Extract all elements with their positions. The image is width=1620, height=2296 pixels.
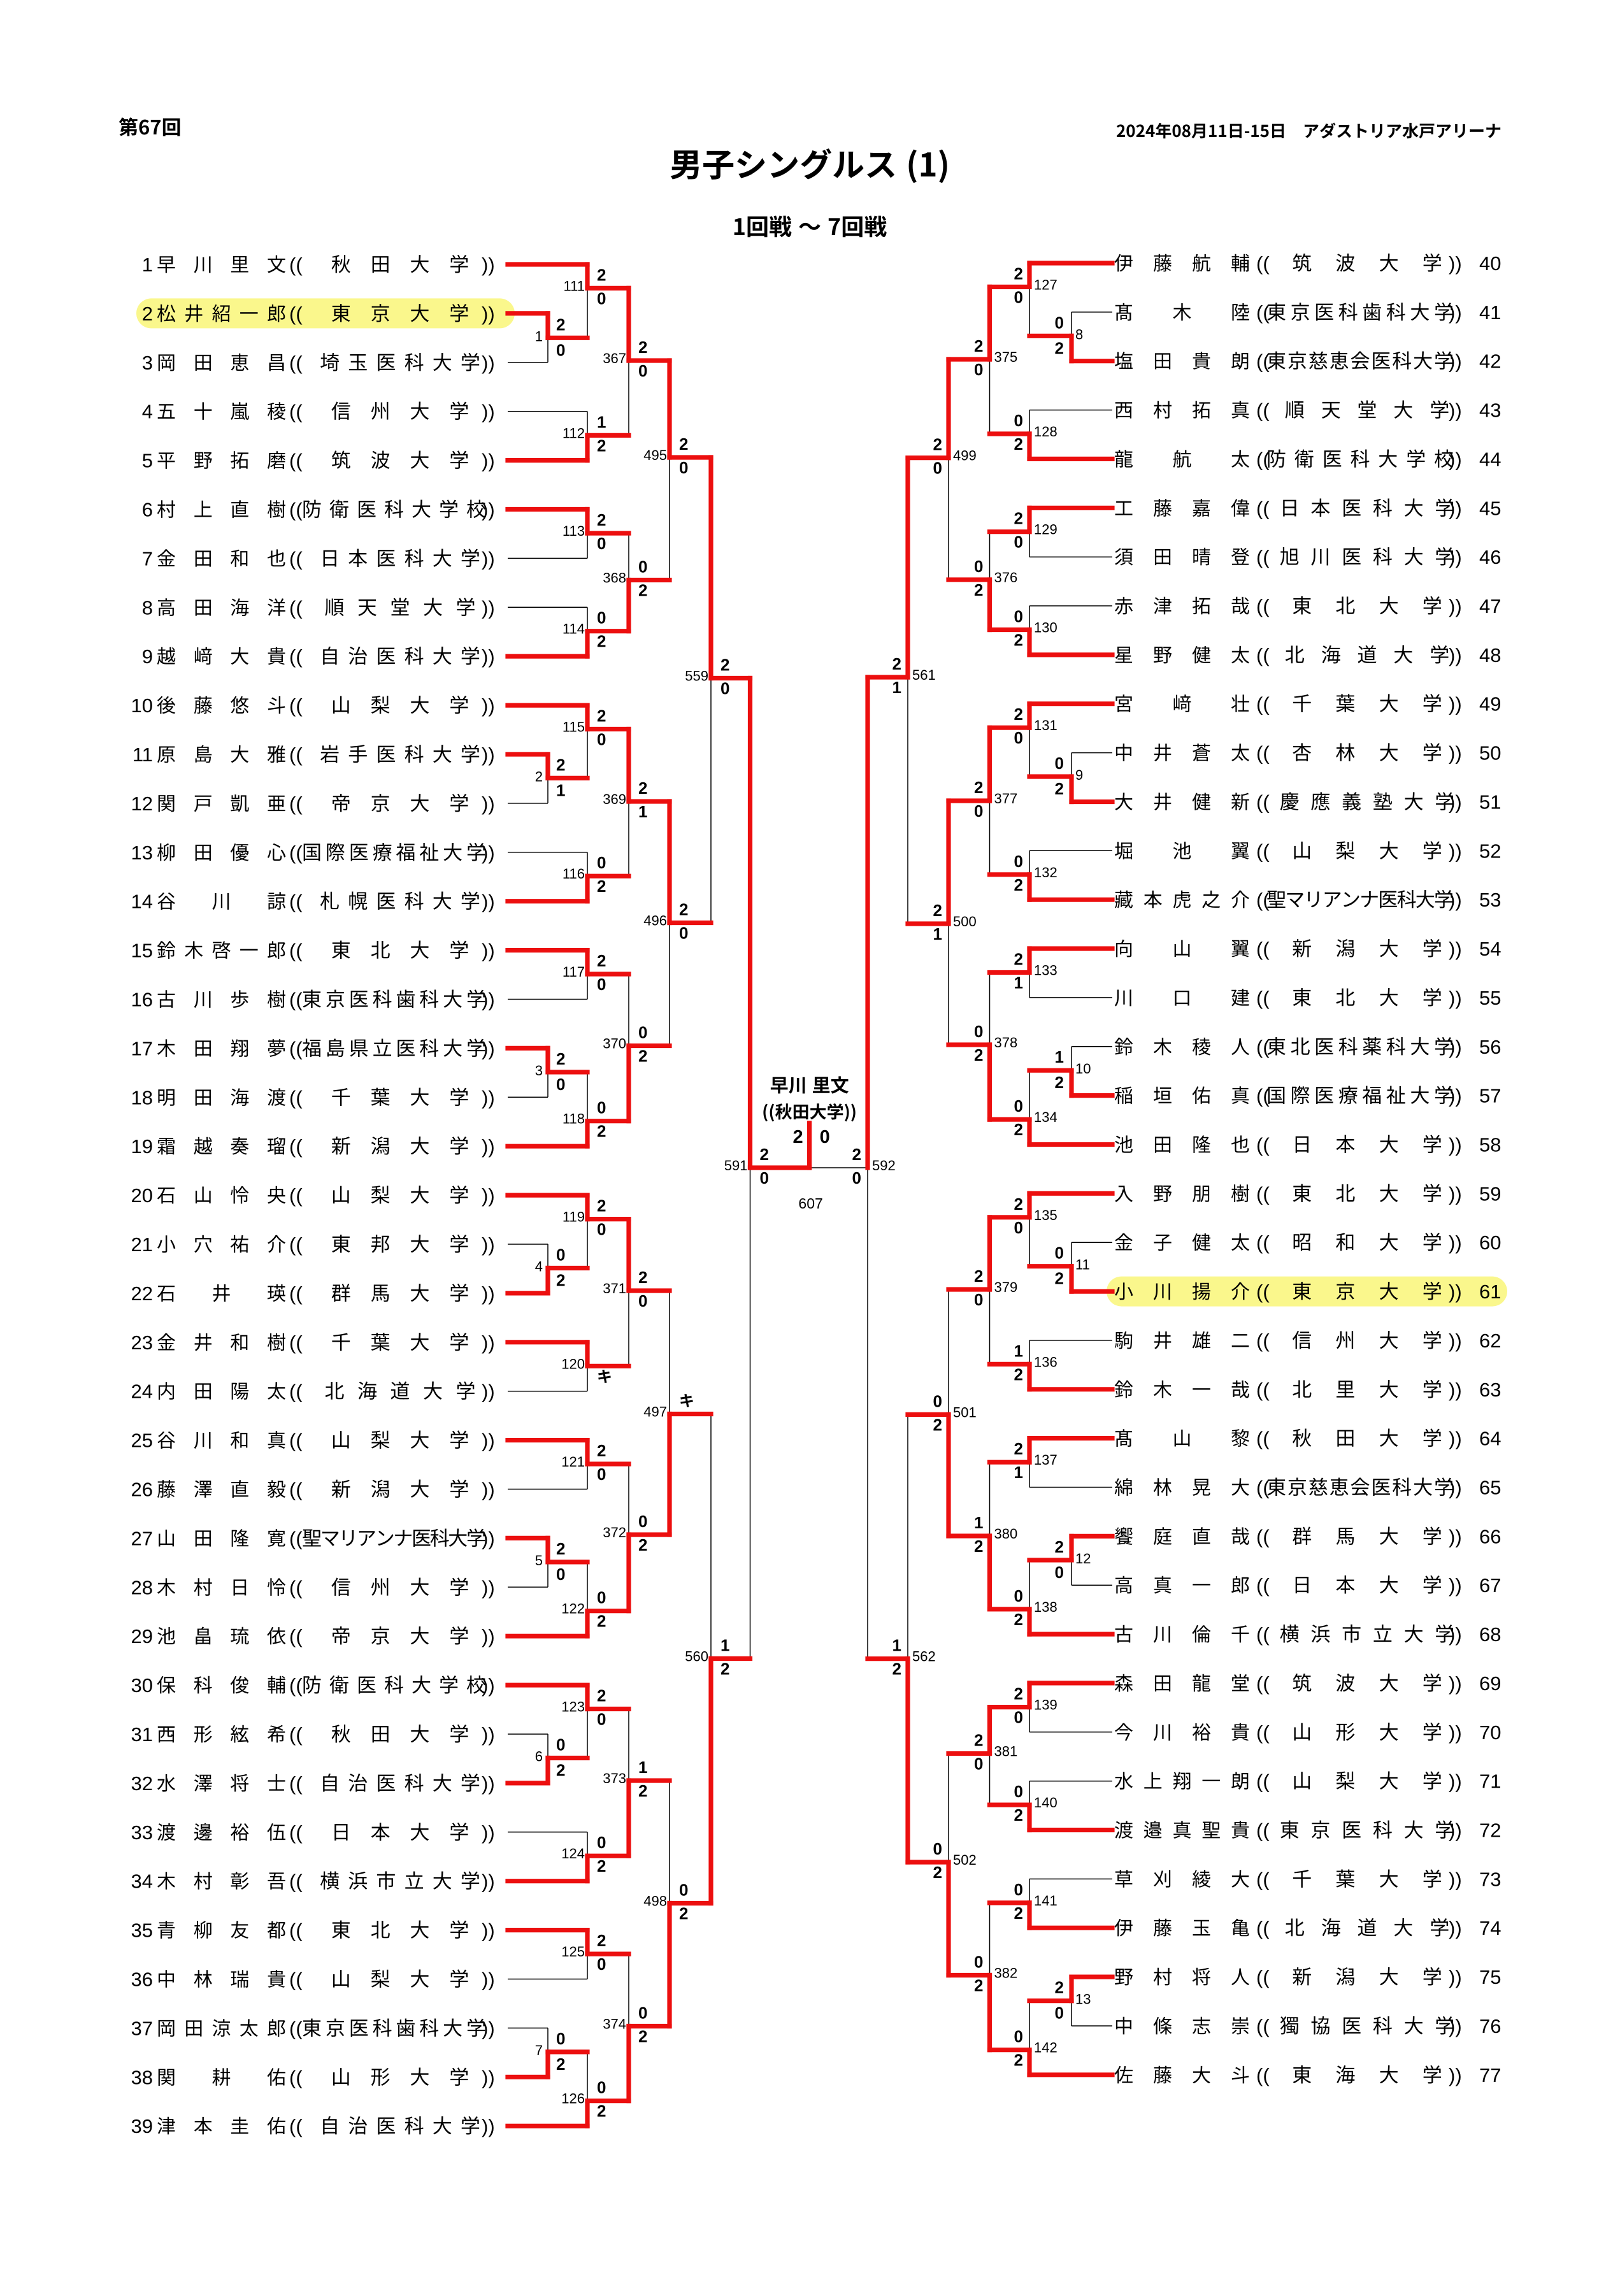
svg-text:)): )): [482, 891, 495, 913]
svg-text:2: 2: [597, 1122, 606, 1141]
svg-text:135: 135: [1034, 1207, 1057, 1223]
svg-text:1: 1: [933, 924, 942, 944]
svg-text:2: 2: [597, 1686, 606, 1705]
svg-text:2: 2: [1014, 1610, 1023, 1629]
svg-text:2: 2: [638, 581, 647, 600]
svg-text:63: 63: [1479, 1379, 1501, 1401]
svg-text:)): )): [482, 2115, 495, 2137]
svg-text:2024年08月11日-15日 アダストリア水戸アリーナ: 2024年08月11日-15日 アダストリア水戸アリーナ: [1116, 118, 1502, 142]
svg-text:東京慈恵会医科大学: 東京慈恵会医科大学: [1266, 345, 1454, 374]
svg-text:0: 0: [974, 1953, 983, 1972]
svg-text:)): )): [482, 1821, 495, 1844]
svg-text:16: 16: [131, 989, 153, 1011]
svg-text:0: 0: [638, 557, 647, 577]
svg-text:1: 1: [892, 678, 901, 697]
svg-text:((: ((: [289, 450, 303, 472]
svg-text:((: ((: [289, 645, 303, 668]
svg-text:55: 55: [1479, 987, 1501, 1009]
svg-text:((: ((: [289, 1919, 303, 1942]
svg-text:377: 377: [994, 791, 1018, 807]
svg-text:2: 2: [1055, 1537, 1064, 1556]
svg-text:29: 29: [131, 1625, 153, 1647]
svg-text:((: ((: [1256, 1721, 1270, 1744]
svg-text:((: ((: [289, 1821, 303, 1844]
svg-text:123: 123: [561, 1699, 585, 1715]
svg-text:2: 2: [556, 1539, 565, 1558]
svg-text:)): )): [1449, 889, 1462, 911]
svg-text:)): )): [482, 645, 495, 668]
svg-text:2: 2: [933, 901, 942, 920]
svg-text:)): )): [1449, 1623, 1462, 1646]
svg-text:1: 1: [638, 802, 647, 821]
svg-text:((: ((: [1256, 399, 1270, 422]
svg-text:2: 2: [556, 755, 565, 774]
svg-text:((: ((: [289, 596, 303, 619]
svg-text:0: 0: [1014, 1218, 1023, 1237]
svg-text:2: 2: [638, 2027, 647, 2046]
svg-text:66: 66: [1479, 1525, 1501, 1547]
svg-text:0: 0: [1055, 1244, 1064, 1263]
svg-text:0: 0: [638, 361, 647, 380]
svg-text:132: 132: [1034, 865, 1057, 880]
svg-text:2: 2: [1014, 1904, 1023, 1923]
svg-text:)): )): [482, 1723, 495, 1746]
svg-text:2: 2: [638, 778, 647, 798]
svg-text:19: 19: [131, 1135, 153, 1158]
svg-text:((: ((: [289, 1282, 303, 1305]
svg-text:((: ((: [289, 303, 303, 325]
svg-text:74: 74: [1479, 1917, 1501, 1939]
svg-text:2: 2: [1014, 1120, 1023, 1139]
svg-text:)): )): [482, 1772, 495, 1795]
svg-text:((: ((: [1256, 1134, 1270, 1156]
svg-text:0: 0: [974, 801, 983, 821]
svg-text:8: 8: [142, 596, 153, 619]
svg-text:2: 2: [1014, 2051, 1023, 2070]
svg-text:((: ((: [1256, 1379, 1270, 1401]
svg-text:137: 137: [1034, 1452, 1057, 1468]
svg-text:39: 39: [131, 2115, 153, 2137]
svg-text:2: 2: [792, 1127, 803, 1147]
svg-text:0: 0: [556, 2029, 565, 2048]
svg-text:防衛医科大学校: 防衛医科大学校: [1266, 443, 1454, 471]
svg-text:0: 0: [974, 1754, 983, 1774]
svg-text:2: 2: [974, 1266, 983, 1286]
svg-text:0: 0: [974, 557, 983, 576]
svg-text:136: 136: [1034, 1354, 1057, 1370]
svg-text:2: 2: [974, 1731, 983, 1750]
svg-text:0: 0: [974, 1290, 983, 1309]
svg-text:2: 2: [852, 1145, 861, 1164]
svg-text:)): )): [482, 1430, 495, 1452]
svg-text:)): )): [1449, 987, 1462, 1009]
svg-text:0: 0: [1014, 1880, 1023, 1899]
svg-text:12: 12: [1075, 1551, 1091, 1567]
svg-text:11: 11: [133, 743, 153, 766]
svg-text:2: 2: [638, 1047, 647, 1066]
svg-text:2: 2: [638, 1268, 647, 1287]
svg-text:1: 1: [1014, 973, 1023, 993]
svg-text:2: 2: [679, 900, 688, 919]
svg-text:)): )): [1449, 1231, 1462, 1254]
svg-text:59: 59: [1479, 1182, 1501, 1205]
svg-text:2: 2: [720, 656, 729, 675]
svg-text:607: 607: [798, 1195, 822, 1212]
svg-text:0: 0: [974, 1022, 983, 1041]
svg-text:372: 372: [603, 1525, 626, 1540]
svg-text:6: 6: [142, 499, 153, 521]
svg-text:((: ((: [1256, 987, 1270, 1009]
svg-text:4: 4: [142, 401, 153, 423]
svg-text:77: 77: [1479, 2064, 1501, 2086]
svg-text:134: 134: [1034, 1109, 1057, 1125]
svg-text:118: 118: [563, 1111, 585, 1127]
svg-text:)): )): [1449, 595, 1462, 617]
svg-text:71: 71: [1479, 1770, 1501, 1793]
svg-text:9: 9: [1075, 767, 1083, 783]
svg-text:501: 501: [953, 1404, 977, 1420]
svg-text:((: ((: [1256, 546, 1270, 568]
svg-text:)): )): [482, 499, 495, 521]
svg-text:64: 64: [1479, 1428, 1501, 1450]
svg-text:0: 0: [852, 1168, 861, 1187]
svg-text:1回戦 ～ 7回戦: 1回戦 ～ 7回戦: [733, 209, 887, 242]
svg-text:0: 0: [1014, 411, 1023, 430]
svg-text:28: 28: [131, 1576, 153, 1598]
svg-text:)): )): [1449, 2064, 1462, 2086]
svg-text:2: 2: [556, 1049, 565, 1068]
svg-text:69: 69: [1479, 1672, 1501, 1695]
svg-text:497: 497: [643, 1404, 667, 1420]
svg-text:2: 2: [974, 1045, 983, 1065]
svg-text:)): )): [1449, 1085, 1462, 1107]
svg-text:127: 127: [1034, 276, 1057, 292]
svg-text:0: 0: [1014, 728, 1023, 747]
svg-text:2: 2: [760, 1145, 769, 1164]
svg-text:((: ((: [289, 2066, 303, 2088]
svg-text:((: ((: [1256, 840, 1270, 862]
svg-text:1: 1: [638, 1758, 647, 1777]
svg-text:499: 499: [953, 448, 977, 464]
svg-text:((: ((: [289, 547, 303, 570]
svg-text:)): )): [482, 842, 495, 864]
svg-text:((: ((: [1256, 1770, 1270, 1793]
svg-text:133: 133: [1034, 963, 1057, 979]
svg-text:((: ((: [1256, 497, 1270, 519]
svg-text:((: ((: [289, 1576, 303, 1598]
svg-text:560: 560: [685, 1649, 708, 1665]
svg-text:0: 0: [597, 853, 606, 872]
svg-text:2: 2: [597, 1931, 606, 1950]
svg-text:2: 2: [597, 1612, 606, 1631]
svg-text:7: 7: [142, 547, 153, 570]
svg-text:13: 13: [1075, 1991, 1091, 2007]
svg-text:2: 2: [638, 1781, 647, 1800]
svg-text:((: ((: [289, 842, 303, 864]
svg-text:2: 2: [556, 1761, 565, 1780]
svg-text:((: ((: [289, 891, 303, 913]
svg-text:1: 1: [142, 254, 153, 276]
svg-text:((: ((: [1256, 595, 1270, 617]
svg-text:12: 12: [131, 793, 153, 815]
svg-text:1: 1: [1055, 1047, 1064, 1066]
svg-text:44: 44: [1479, 448, 1501, 470]
svg-text:((: ((: [1256, 742, 1270, 764]
svg-text:126: 126: [561, 2091, 585, 2107]
svg-text:2: 2: [1055, 1978, 1064, 1997]
svg-text:0: 0: [597, 289, 606, 308]
svg-text:58: 58: [1479, 1134, 1501, 1156]
svg-text:0: 0: [1014, 1096, 1023, 1116]
svg-text:1: 1: [720, 1636, 729, 1655]
svg-text:0: 0: [597, 1588, 606, 1607]
svg-text:2: 2: [597, 951, 606, 970]
svg-text:371: 371: [603, 1281, 626, 1296]
svg-text:5: 5: [535, 1553, 543, 1568]
svg-text:4: 4: [535, 1259, 543, 1275]
svg-text:0: 0: [597, 534, 606, 553]
svg-text:2: 2: [1014, 705, 1023, 724]
svg-text:)): )): [1449, 1770, 1462, 1793]
svg-text:2: 2: [679, 434, 688, 454]
svg-text:東京慈恵会医科大学: 東京慈恵会医科大学: [1266, 1472, 1454, 1500]
svg-text:第67回: 第67回: [118, 111, 182, 140]
svg-text:((: ((: [289, 989, 303, 1011]
svg-text:1: 1: [556, 780, 565, 800]
svg-text:128: 128: [1034, 424, 1057, 440]
svg-text:)): )): [482, 401, 495, 423]
svg-text:2: 2: [597, 510, 606, 529]
svg-text:0: 0: [556, 1245, 565, 1265]
svg-text:0: 0: [597, 975, 606, 994]
svg-text:2: 2: [597, 436, 606, 455]
svg-text:22: 22: [131, 1282, 153, 1305]
svg-text:41: 41: [1479, 301, 1501, 324]
svg-text:57: 57: [1479, 1085, 1501, 1107]
svg-text:((: ((: [289, 254, 303, 276]
svg-text:0: 0: [820, 1127, 830, 1147]
svg-text:53: 53: [1479, 889, 1501, 911]
svg-text:67: 67: [1479, 1574, 1501, 1596]
svg-text:72: 72: [1479, 1819, 1501, 1842]
svg-text:37: 37: [131, 2017, 153, 2039]
svg-text:129: 129: [1034, 522, 1057, 538]
svg-text:((: ((: [1256, 1330, 1270, 1352]
svg-text:6: 6: [535, 1749, 543, 1765]
svg-text:3: 3: [142, 352, 153, 374]
svg-text:((: ((: [289, 1772, 303, 1795]
svg-text:15: 15: [131, 940, 153, 962]
svg-text:)): )): [482, 352, 495, 374]
svg-text:1: 1: [892, 1636, 901, 1655]
svg-text:2: 2: [597, 2102, 606, 2121]
svg-text:)): )): [482, 1282, 495, 1305]
svg-text:5: 5: [142, 450, 153, 472]
svg-text:2: 2: [1014, 264, 1023, 283]
svg-text:((: ((: [289, 1381, 303, 1403]
svg-text:367: 367: [603, 350, 626, 366]
svg-text:592: 592: [872, 1158, 896, 1173]
svg-text:((: ((: [289, 352, 303, 374]
svg-text:2: 2: [638, 338, 647, 357]
svg-text:((: ((: [289, 1086, 303, 1109]
svg-text:142: 142: [1034, 2040, 1057, 2056]
svg-text:0: 0: [679, 1881, 688, 1900]
svg-text:46: 46: [1479, 546, 1501, 568]
svg-text:)): )): [1449, 938, 1462, 960]
svg-text:139: 139: [1034, 1697, 1057, 1713]
svg-text:11: 11: [1075, 1257, 1090, 1273]
svg-text:キ: キ: [679, 1389, 694, 1411]
svg-text:)): )): [482, 1527, 495, 1549]
svg-text:((: ((: [289, 694, 303, 717]
svg-text:0: 0: [556, 1735, 565, 1754]
svg-text:)): )): [1449, 840, 1462, 862]
svg-text:)): )): [482, 793, 495, 815]
svg-text:2: 2: [597, 1856, 606, 1876]
svg-text:)): )): [482, 694, 495, 717]
svg-text:0: 0: [1014, 607, 1023, 626]
svg-text:496: 496: [643, 913, 667, 929]
svg-text:)): )): [1449, 1917, 1462, 1939]
svg-text:)): )): [482, 2066, 495, 2088]
svg-text:0: 0: [1014, 2027, 1023, 2046]
svg-text:2: 2: [556, 2055, 565, 2074]
svg-text:2: 2: [1014, 1365, 1023, 1384]
svg-text:3: 3: [535, 1063, 543, 1079]
svg-text:0: 0: [556, 1565, 565, 1584]
svg-text:2: 2: [892, 654, 901, 673]
svg-text:52: 52: [1479, 840, 1501, 862]
svg-text:2: 2: [556, 1271, 565, 1290]
svg-text:32: 32: [131, 1772, 153, 1795]
svg-text:119: 119: [563, 1209, 585, 1225]
svg-text:)): )): [482, 1969, 495, 1991]
svg-text:2: 2: [974, 1537, 983, 1556]
svg-text:8: 8: [1075, 326, 1083, 342]
svg-text:1: 1: [974, 1513, 983, 1532]
svg-text:0: 0: [597, 1220, 606, 1239]
svg-text:124: 124: [561, 1846, 585, 1862]
svg-text:((: ((: [289, 401, 303, 423]
svg-text:キ: キ: [597, 1364, 612, 1386]
svg-text:2: 2: [1055, 338, 1064, 357]
svg-text:9: 9: [142, 645, 153, 668]
svg-text:((: ((: [1256, 252, 1270, 275]
svg-text:)): )): [482, 2017, 495, 2039]
svg-text:)): )): [482, 1919, 495, 1942]
svg-text:2: 2: [720, 1660, 729, 1679]
svg-text:47: 47: [1479, 595, 1501, 617]
svg-text:33: 33: [131, 1821, 153, 1844]
svg-text:0: 0: [760, 1168, 769, 1187]
svg-text:((秋田大学)): ((秋田大学)): [762, 1098, 857, 1123]
svg-text:)): )): [1449, 693, 1462, 715]
svg-text:73: 73: [1479, 1868, 1501, 1890]
svg-text:113: 113: [563, 523, 585, 539]
svg-text:120: 120: [561, 1356, 585, 1372]
svg-text:)): )): [482, 1184, 495, 1207]
svg-text:25: 25: [131, 1430, 153, 1452]
svg-text:60: 60: [1479, 1231, 1501, 1254]
svg-text:2: 2: [556, 315, 565, 334]
svg-text:1: 1: [1014, 1463, 1023, 1482]
svg-text:)): )): [1449, 1721, 1462, 1744]
svg-text:((: ((: [289, 1037, 303, 1059]
svg-text:)): )): [482, 1625, 495, 1647]
svg-text:13: 13: [131, 842, 153, 864]
svg-text:561: 561: [912, 667, 936, 683]
svg-text:)): )): [1449, 1868, 1462, 1890]
svg-text:)): )): [1449, 1477, 1462, 1499]
svg-text:)): )): [1449, 1819, 1462, 1842]
svg-text:2: 2: [597, 707, 606, 726]
svg-text:382: 382: [994, 1965, 1018, 1981]
svg-text:51: 51: [1479, 791, 1501, 814]
svg-text:381: 381: [994, 1744, 1018, 1760]
svg-text:((: ((: [289, 2017, 303, 2039]
svg-text:0: 0: [556, 1075, 565, 1094]
svg-text:)): )): [482, 1576, 495, 1598]
svg-text:((: ((: [289, 940, 303, 962]
svg-text:)): )): [482, 547, 495, 570]
svg-text:375: 375: [994, 349, 1018, 365]
svg-text:0: 0: [638, 2004, 647, 2023]
svg-text:)): )): [1449, 546, 1462, 568]
svg-text:2: 2: [974, 778, 983, 797]
svg-text:((: ((: [1256, 1574, 1270, 1596]
svg-text:116: 116: [563, 866, 585, 882]
svg-text:10: 10: [1075, 1061, 1091, 1077]
svg-text:54: 54: [1479, 938, 1501, 960]
svg-text:23: 23: [131, 1331, 153, 1354]
svg-text:0: 0: [933, 459, 942, 478]
svg-text:559: 559: [685, 668, 708, 684]
svg-text:65: 65: [1479, 1477, 1501, 1499]
svg-text:0: 0: [974, 360, 983, 379]
svg-text:138: 138: [1034, 1599, 1057, 1615]
svg-text:48: 48: [1479, 644, 1501, 666]
svg-text:0: 0: [933, 1391, 942, 1410]
svg-text:2: 2: [974, 1976, 983, 1995]
svg-text:((: ((: [289, 1674, 303, 1697]
svg-text:聖マリアンナ医科大学: 聖マリアンナ医科大学: [1266, 884, 1454, 912]
svg-text:((: ((: [289, 1331, 303, 1354]
svg-text:)): )): [1449, 399, 1462, 422]
svg-text:((: ((: [289, 499, 303, 521]
svg-text:0: 0: [1014, 852, 1023, 871]
svg-text:0: 0: [1055, 313, 1064, 332]
svg-text:2: 2: [1014, 1805, 1023, 1825]
svg-text:((: ((: [289, 1479, 303, 1501]
svg-text:)): )): [1449, 644, 1462, 666]
svg-text:2: 2: [1014, 509, 1023, 528]
svg-text:)): )): [482, 1331, 495, 1354]
svg-text:0: 0: [1055, 1563, 1064, 1582]
svg-text:495: 495: [643, 447, 667, 463]
svg-text:((: ((: [1256, 1868, 1270, 1890]
svg-text:562: 562: [912, 1649, 936, 1665]
svg-text:2: 2: [1014, 950, 1023, 969]
svg-text:0: 0: [638, 1291, 647, 1310]
svg-text:)): )): [482, 1086, 495, 1109]
svg-text:((: ((: [1256, 1819, 1270, 1842]
svg-text:)): )): [1449, 1330, 1462, 1352]
svg-text:)): )): [482, 1233, 495, 1256]
svg-text:35: 35: [131, 1919, 153, 1942]
svg-text:((: ((: [289, 1723, 303, 1746]
svg-text:121: 121: [561, 1454, 585, 1470]
